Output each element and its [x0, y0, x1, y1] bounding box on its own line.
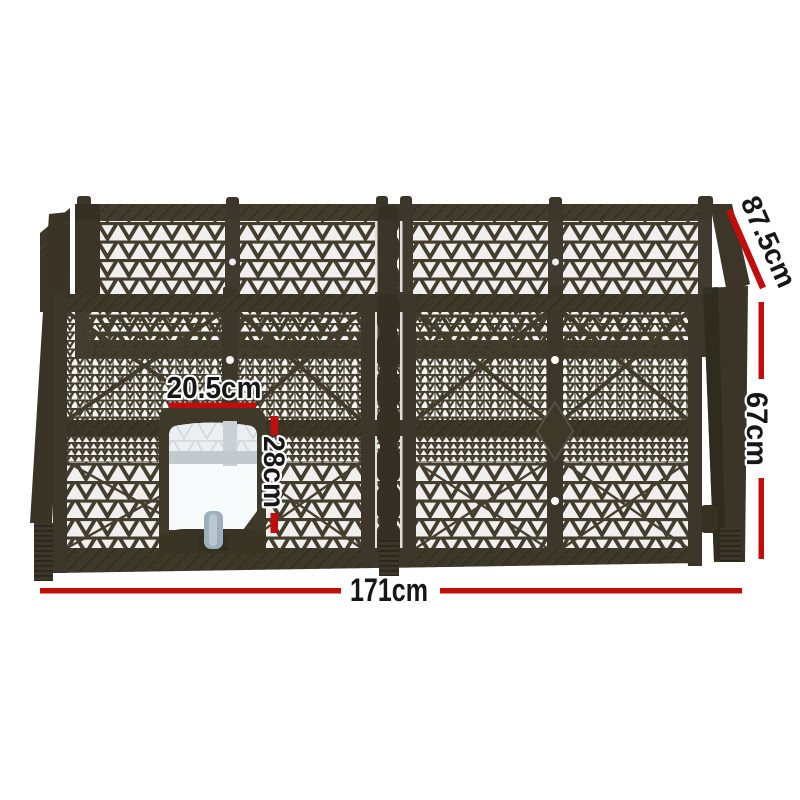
- svg-text:171cm: 171cm: [350, 572, 428, 608]
- svg-text:20.5cm: 20.5cm: [167, 370, 262, 405]
- svg-text:28cm: 28cm: [257, 436, 290, 508]
- svg-text:67cm: 67cm: [740, 392, 773, 466]
